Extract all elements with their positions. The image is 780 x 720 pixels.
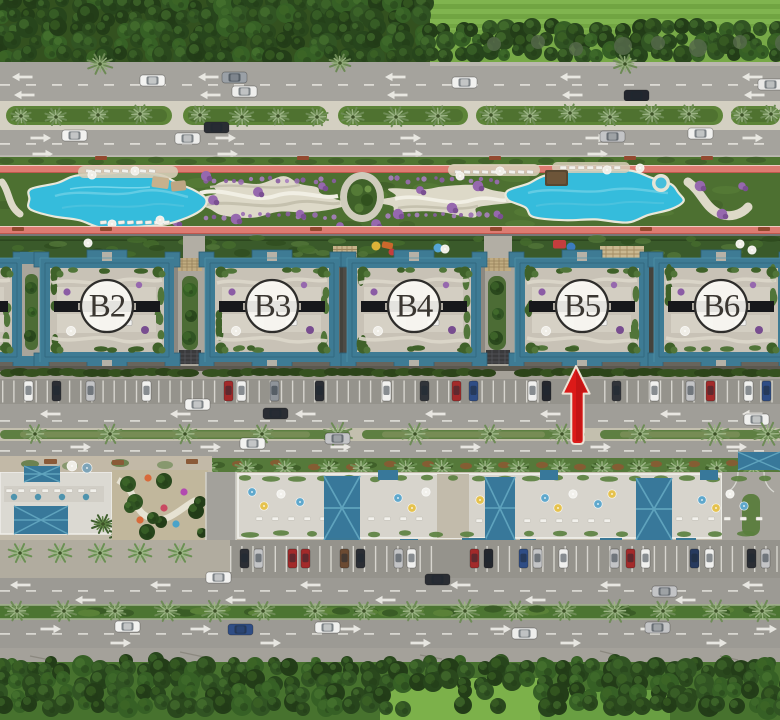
svg-text:B5: B5	[564, 289, 601, 325]
svg-text:B4: B4	[396, 289, 433, 325]
svg-text:B2: B2	[89, 289, 126, 325]
svg-text:B6: B6	[703, 289, 740, 325]
svg-text:B3: B3	[254, 289, 291, 325]
